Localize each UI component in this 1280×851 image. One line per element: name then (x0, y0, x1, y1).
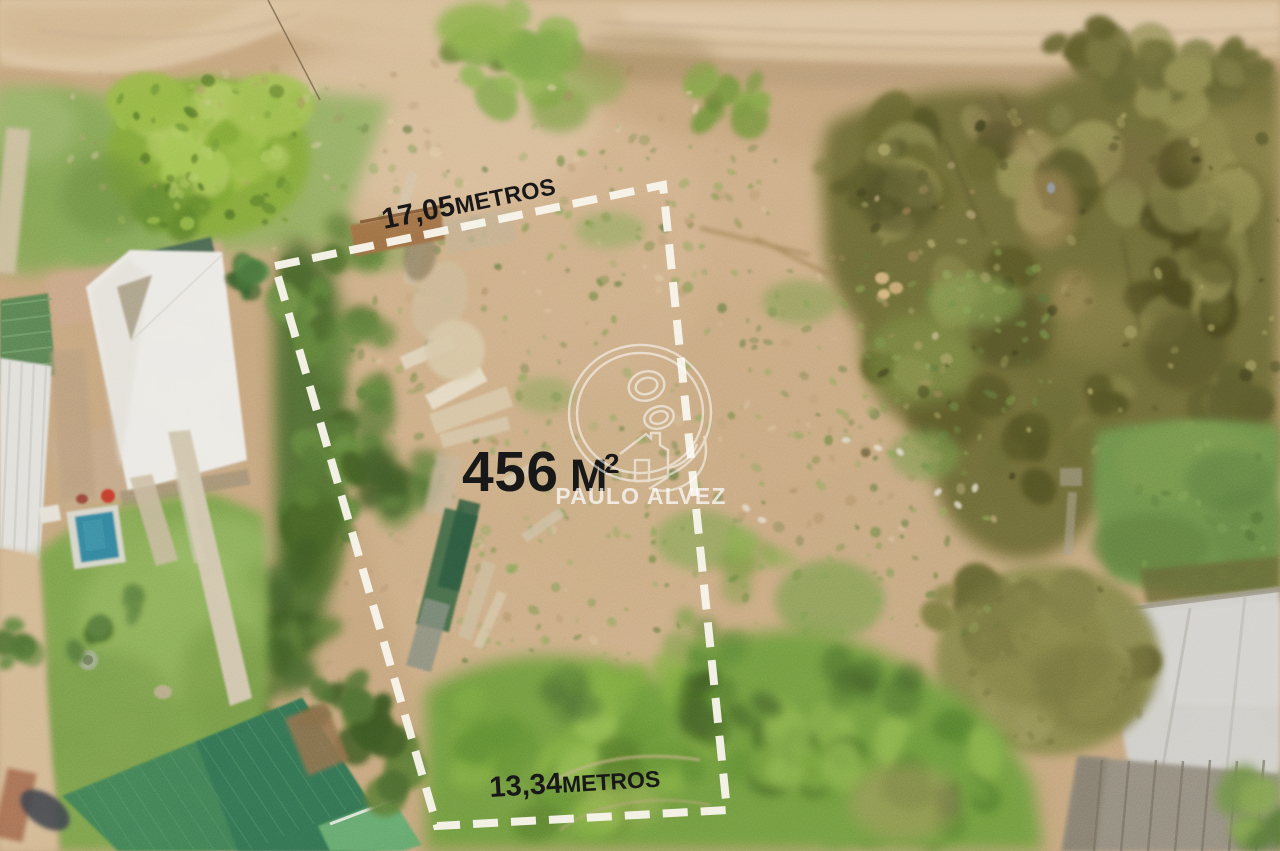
svg-text:PAULO ALVEZ: PAULO ALVEZ (555, 483, 726, 509)
svg-text:456: 456 (462, 440, 559, 504)
